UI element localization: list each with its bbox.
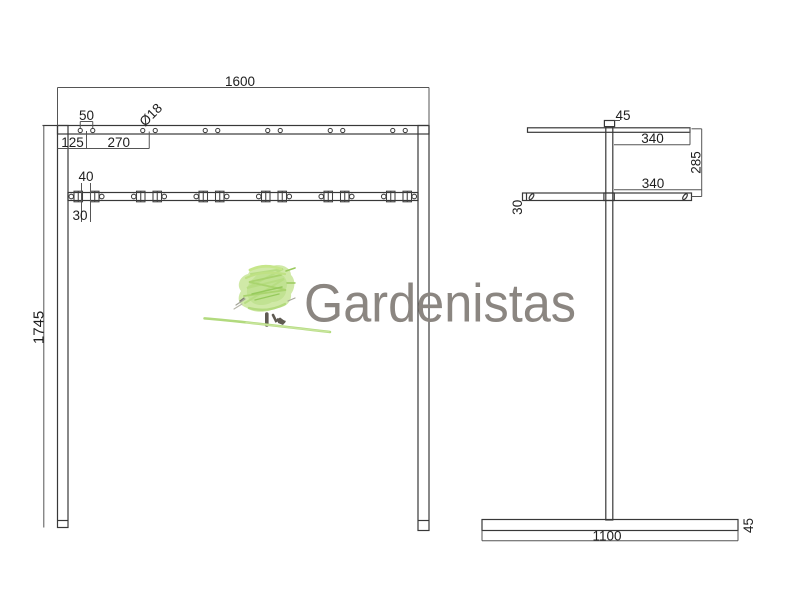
svg-text:45: 45 <box>616 108 631 123</box>
svg-text:340: 340 <box>642 176 665 191</box>
svg-text:340: 340 <box>641 131 664 146</box>
svg-text:Gardenistas: Gardenistas <box>304 274 576 334</box>
svg-text:1745: 1745 <box>30 311 47 344</box>
svg-text:1100: 1100 <box>592 528 621 543</box>
svg-text:1600: 1600 <box>225 74 255 89</box>
svg-text:285: 285 <box>689 151 704 174</box>
svg-text:30: 30 <box>72 208 87 223</box>
svg-text:30: 30 <box>510 200 525 215</box>
svg-text:50: 50 <box>79 108 94 123</box>
svg-text:270: 270 <box>107 135 130 150</box>
svg-text:40: 40 <box>78 169 93 184</box>
svg-text:125: 125 <box>61 135 84 150</box>
svg-text:45: 45 <box>741 518 756 533</box>
svg-text:Ø18: Ø18 <box>137 100 166 129</box>
